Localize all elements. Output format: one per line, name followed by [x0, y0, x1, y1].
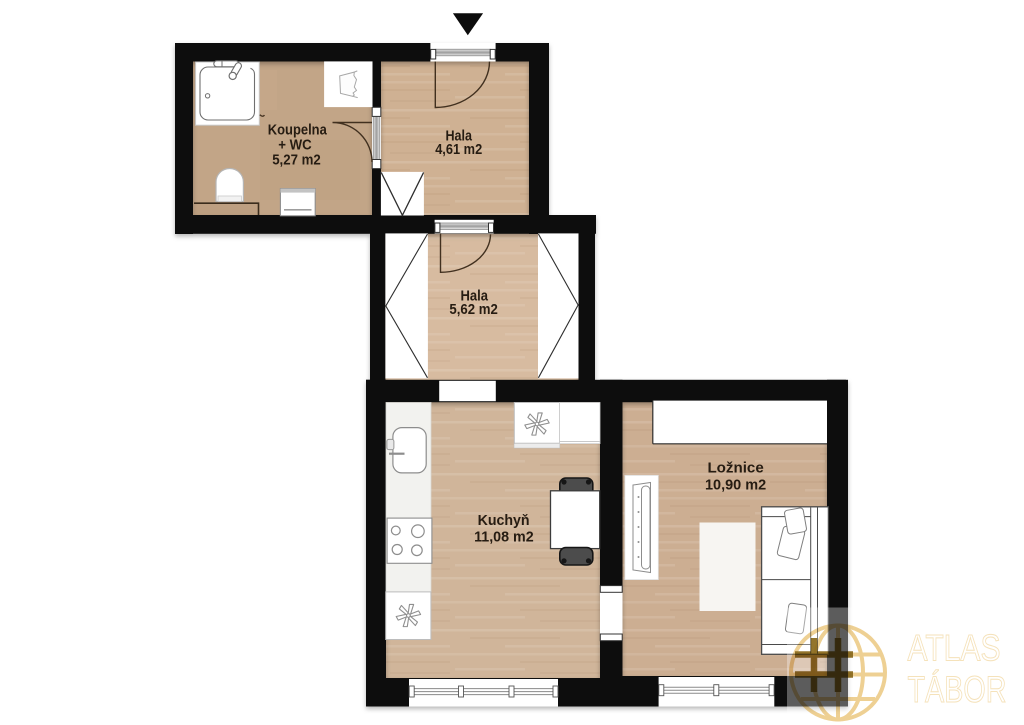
svg-text:10,90 m2: 10,90 m2 [705, 476, 766, 493]
svg-text:5,62 m2: 5,62 m2 [449, 301, 497, 318]
svg-text:ATLAS: ATLAS [908, 628, 1001, 669]
svg-text:Kuchyň: Kuchyň [478, 512, 530, 529]
svg-text:Ložnice: Ložnice [707, 459, 763, 476]
svg-text:11,08 m2: 11,08 m2 [474, 529, 534, 546]
svg-text:5,27 m2: 5,27 m2 [272, 152, 321, 169]
svg-text:4,61 m2: 4,61 m2 [435, 141, 482, 158]
svg-text:TÁBOR: TÁBOR [908, 669, 1007, 710]
